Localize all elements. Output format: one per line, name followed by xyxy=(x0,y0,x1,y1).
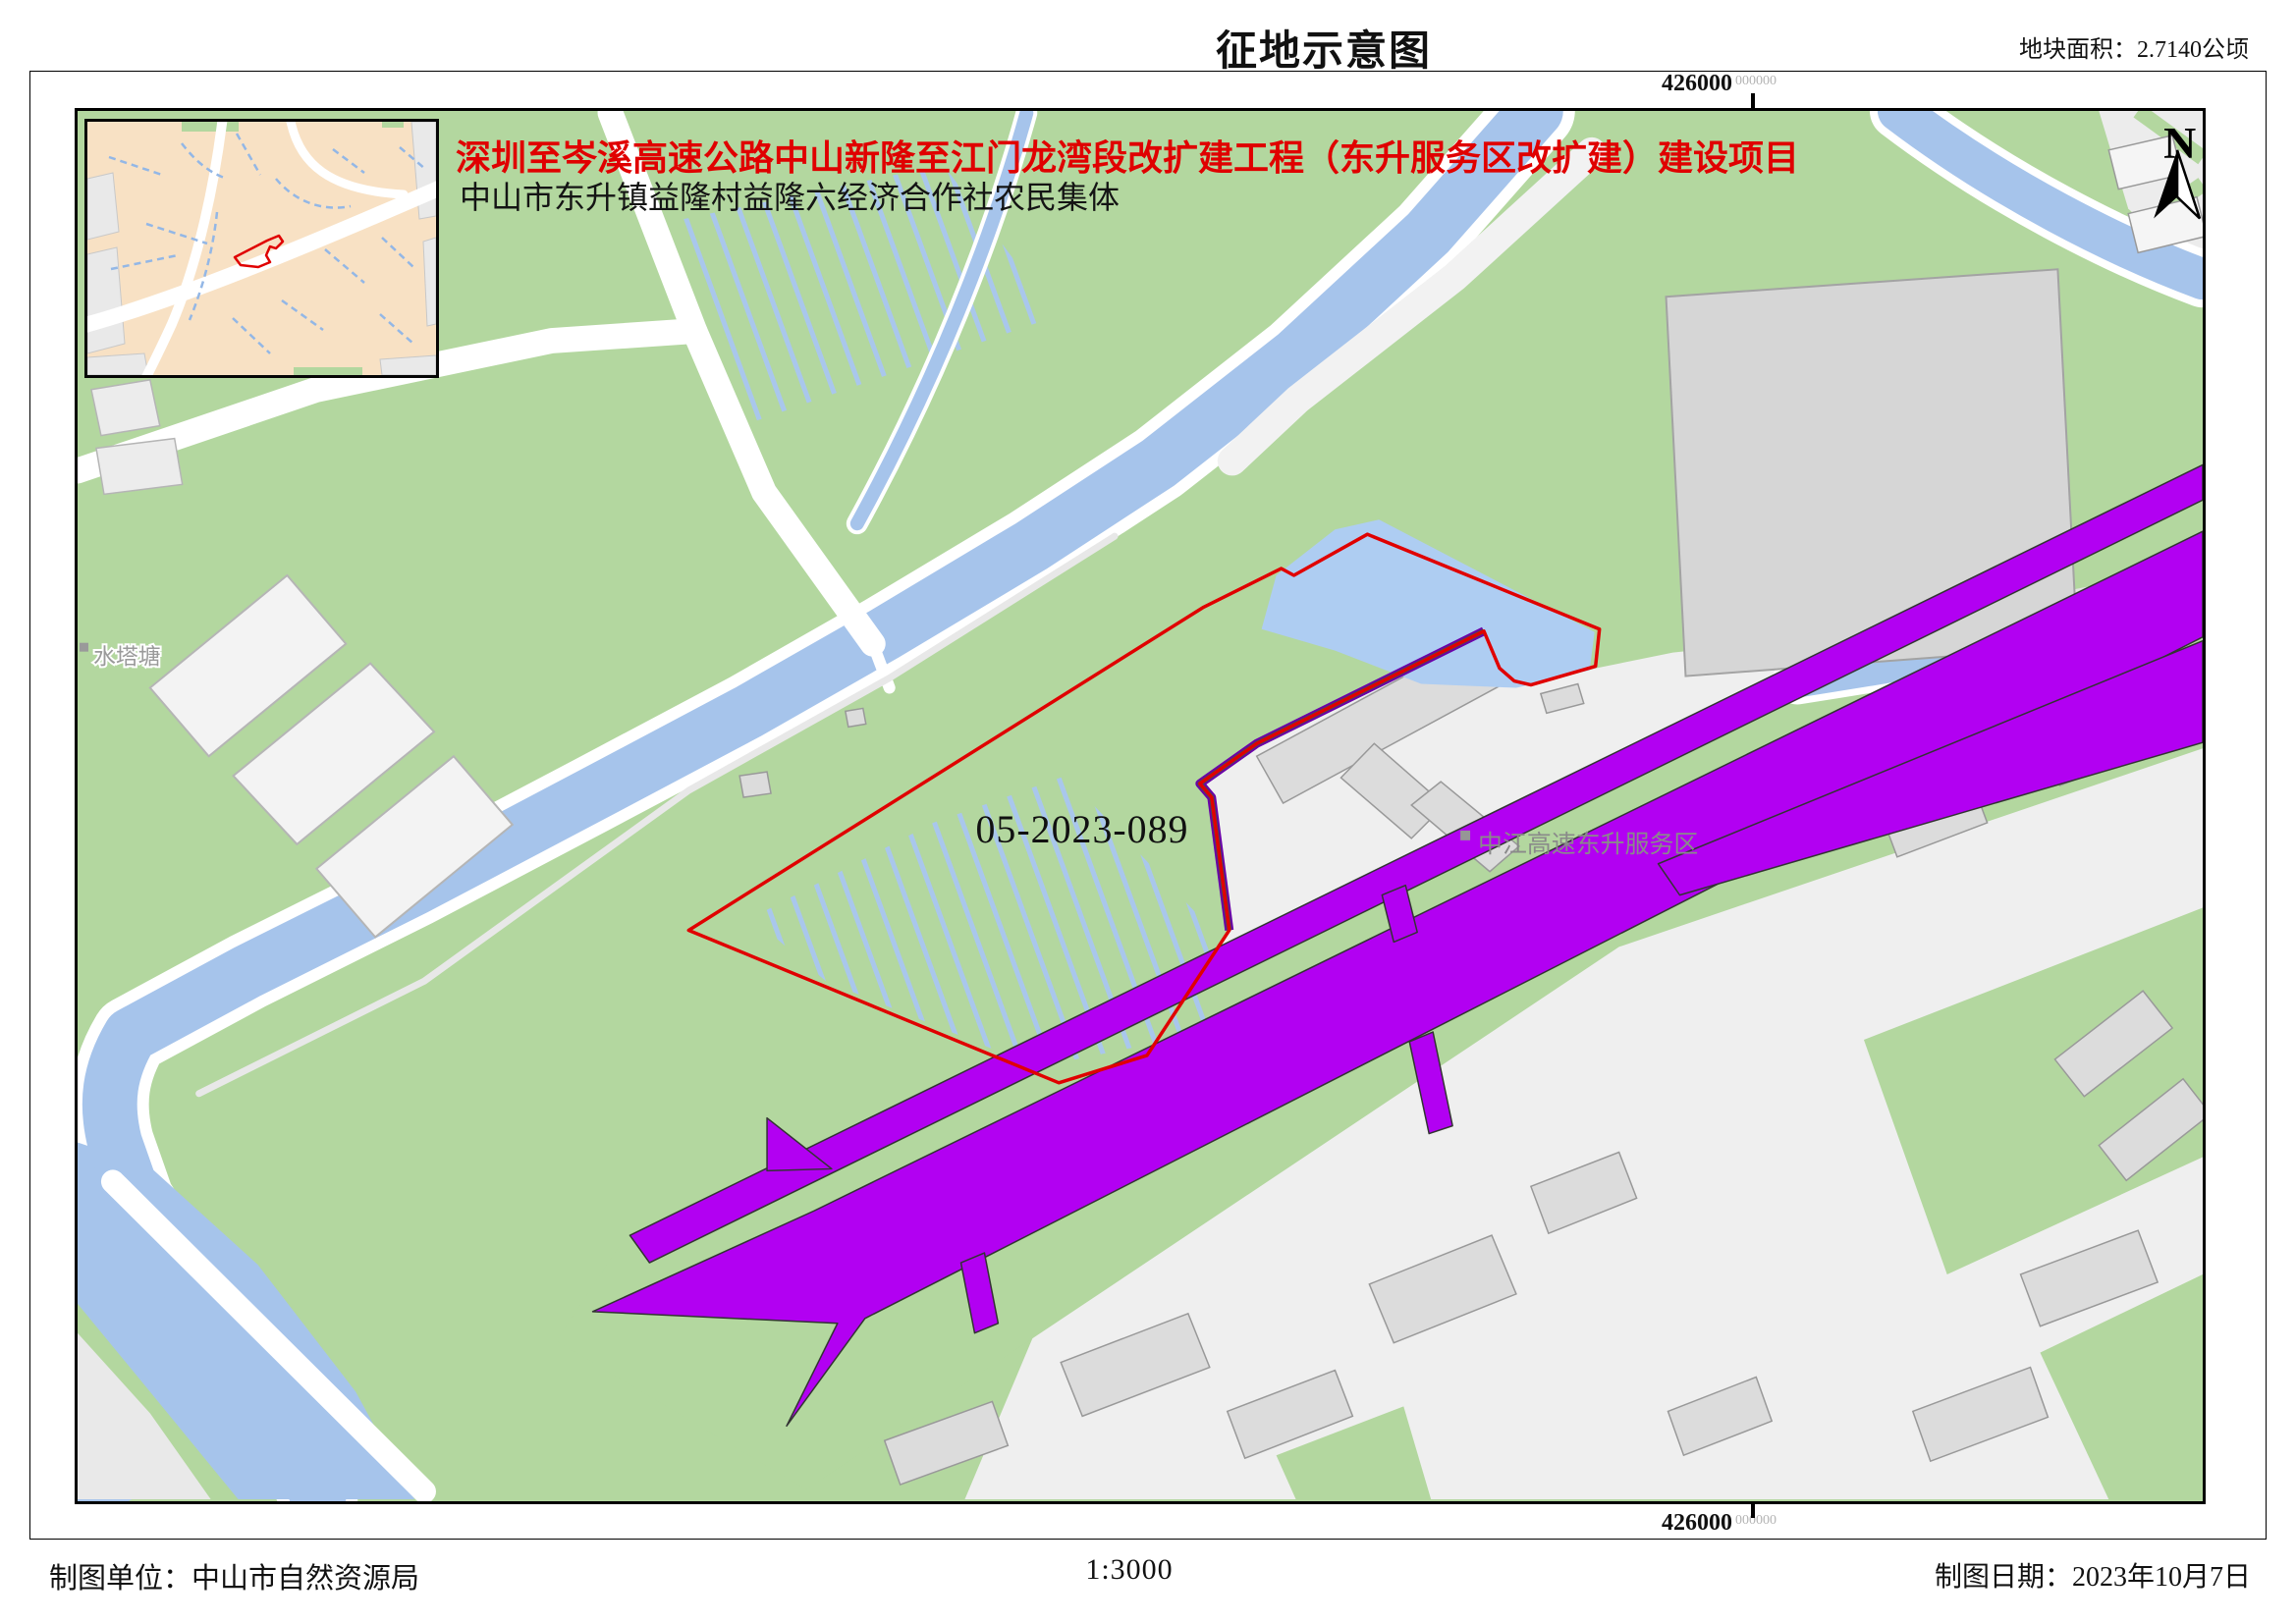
parcel-area-label: 地块面积：2.7140公顷 xyxy=(2019,29,2249,64)
service-area-label: 中江高速东升服务区 xyxy=(1478,831,1698,858)
grid-coordinate-bottom-sub: 000000 xyxy=(1735,1513,1777,1528)
map-scale: 1:3000 xyxy=(1021,1553,1237,1587)
grid-coordinate-bottom-main: 426000 xyxy=(1662,1510,1732,1536)
poi-marker xyxy=(1460,831,1470,840)
inset-canvas xyxy=(87,122,436,375)
parcel-id-label: 05-2023-089 xyxy=(975,807,1188,851)
community-name: 中山市东升镇益隆村益隆六经济合作社农民集体 xyxy=(460,173,1120,218)
grid-coordinate-top-main: 426000 xyxy=(1662,71,1732,96)
map-agency: 制图单位：中山市自然资源局 xyxy=(49,1555,419,1596)
grid-coordinate-top-sub: 000000 xyxy=(1735,74,1777,88)
land-acquisition-map-page: 征地示意图 地块面积：2.7140公顷 426000000000 4260000… xyxy=(0,0,2296,1623)
map-date: 制图日期：2023年10月7日 xyxy=(1935,1555,2251,1595)
pond-name-label: 水塔塘 xyxy=(93,644,161,670)
page-title: 征地示意图 xyxy=(1108,18,1540,78)
grid-coordinate-bottom: 426000000000 xyxy=(1662,1510,1777,1537)
inset-background xyxy=(87,122,436,375)
grid-coordinate-top: 426000000000 xyxy=(1662,71,1777,97)
factory-block-topright xyxy=(1667,269,2078,676)
inset-locator-map xyxy=(84,119,439,378)
pond-marker xyxy=(80,643,88,652)
